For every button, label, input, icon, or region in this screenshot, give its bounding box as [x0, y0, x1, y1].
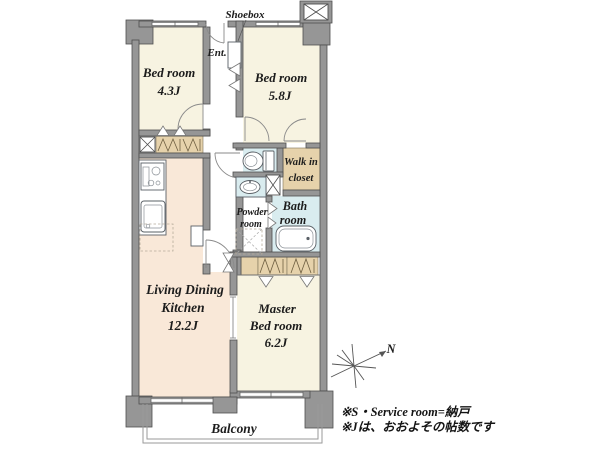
window-icon — [152, 22, 198, 26]
window-icon — [240, 392, 303, 397]
window-icon — [256, 22, 300, 26]
bath-room-label2: room — [280, 213, 306, 227]
north-label: N — [386, 342, 397, 356]
bath-room-label: Bath — [282, 199, 308, 213]
shoebox-label: Shoebox — [225, 9, 265, 21]
toilet-icon — [243, 151, 274, 171]
balcony-label: Balcony — [210, 421, 256, 436]
bathtub-icon — [276, 226, 316, 251]
master-bedroom-label2: Bed room — [249, 318, 302, 333]
ldk-size: 12.2J — [168, 318, 199, 333]
entrance-label: Ent. — [206, 47, 226, 59]
vanity-sink-icon — [236, 177, 266, 197]
footnote-service-room: ※S・Service room=納戸 — [341, 405, 472, 419]
bedroom2-label: Bed room — [254, 70, 307, 85]
stove-icon — [141, 163, 164, 190]
ldk-label2: Kitchen — [160, 300, 204, 315]
counter-cabinet — [191, 226, 203, 246]
bedroom2-size: 5.8J — [269, 88, 292, 103]
floor-plan-page: Shoebox Ent. Bed room 4.3J Bed room 5.8J… — [0, 0, 600, 450]
master-bedroom-floor — [237, 275, 320, 391]
bedroom1-size: 4.3J — [157, 83, 181, 98]
ldk-label: Living Dining — [145, 282, 224, 297]
master-bedroom-label: Master — [257, 301, 297, 316]
footnote-tatami-count: ※Jは、おおよその帖数です — [341, 420, 495, 434]
kitchen-sink-icon — [141, 201, 165, 232]
master-bedroom-size: 6.2J — [265, 335, 288, 350]
walk-in-closet-label2: closet — [289, 173, 315, 184]
compass-icon — [331, 344, 386, 388]
powder-room-label2: room — [240, 219, 262, 230]
floor-plan-drawing: Shoebox Ent. Bed room 4.3J Bed room 5.8J… — [0, 0, 600, 450]
bedroom1-label: Bed room — [142, 65, 195, 80]
powder-room-label: Powder — [236, 207, 267, 218]
window-icon — [151, 398, 213, 403]
master-sliding-door — [230, 297, 236, 338]
walk-in-closet-label: Walk in — [284, 157, 318, 168]
